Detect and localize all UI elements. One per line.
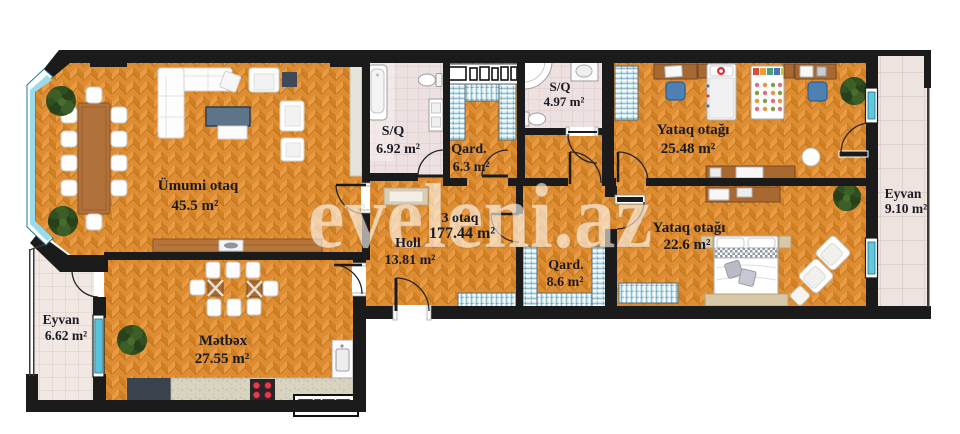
svg-text:22.6 m²: 22.6 m² [664,237,711,253]
svg-text:Yataq otağı: Yataq otağı [653,220,726,236]
svg-text:Yataq otağı: Yataq otağı [657,122,730,138]
svg-text:13.81 m²: 13.81 m² [385,253,436,268]
svg-text:8.6 m²: 8.6 m² [547,275,584,290]
svg-text:6.92 m²: 6.92 m² [376,142,420,157]
svg-text:Qard.: Qard. [548,258,583,273]
svg-text:9.10 m²: 9.10 m² [885,201,927,216]
svg-text:4.97 m²: 4.97 m² [544,94,585,109]
svg-text:Mətbəx: Mətbəx [199,333,248,349]
svg-text:Eyvan: Eyvan [43,312,80,327]
svg-text:6.62 m²: 6.62 m² [45,328,87,343]
svg-text:6.3 m²: 6.3 m² [453,160,490,175]
svg-text:27.55 m²: 27.55 m² [195,351,250,367]
svg-text:25.48 m²: 25.48 m² [661,141,716,157]
svg-text:Holl: Holl [395,236,421,251]
svg-text:Eyvan: Eyvan [885,186,922,201]
svg-text:S/Q: S/Q [382,124,405,139]
svg-text:3 otaq: 3 otaq [442,211,479,226]
svg-text:S/Q: S/Q [550,79,571,94]
svg-text:177.44 m²: 177.44 m² [429,225,495,242]
svg-text:45.5 m²: 45.5 m² [172,198,219,214]
svg-text:Qard.: Qard. [451,142,486,157]
svg-text:eveleni.az: eveleni.az [308,165,653,267]
svg-text:Ümumi otaq: Ümumi otaq [158,177,239,194]
